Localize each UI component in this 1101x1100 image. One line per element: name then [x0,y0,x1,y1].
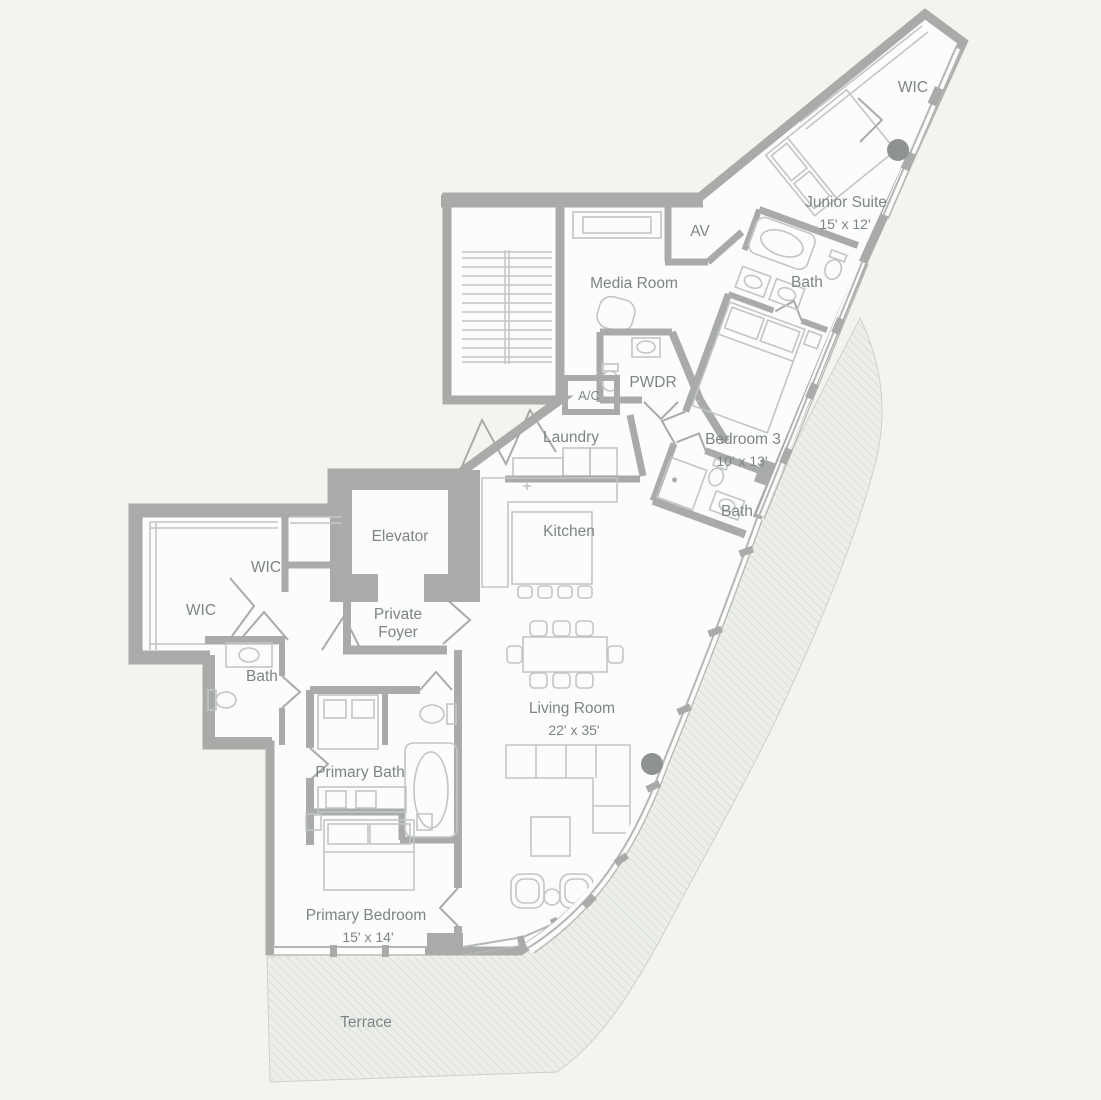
label-media-room: Media Room [590,275,678,292]
label-primary-bedroom: Primary Bedroom [306,907,427,924]
floor-plan-page: WIC Junior Suite 15' x 12' AV Media Room… [0,0,1101,1100]
label-private-foyer-2: Foyer [378,624,418,641]
label-wic-wing: WIC [898,79,928,96]
label-bath-left: Bath [246,668,278,685]
label-living-room: Living Room [529,700,615,717]
label-kitchen: Kitchen [543,523,595,540]
label-junior-suite: Junior Suite [805,194,887,211]
label-primary-bath: Primary Bath [315,764,405,781]
label-wic-upper: WIC [251,559,281,576]
label-laundry: Laundry [543,429,599,446]
label-primary-bedroom-dim: 15' x 14' [342,929,393,945]
label-elevator: Elevator [372,528,429,545]
label-bedroom3: Bedroom 3 [705,431,781,448]
column-top [887,139,909,161]
label-ac: A/C [578,388,600,403]
label-private-foyer-1: Private [374,606,422,623]
label-bedroom3-dim: 10' x 13' [716,453,767,469]
label-terrace: Terrace [340,1014,392,1031]
label-bath-junior: Bath [791,274,823,291]
label-living-room-dim: 22' x 35' [548,722,599,738]
label-junior-suite-dim: 15' x 12' [819,216,870,232]
label-wic-lower: WIC [186,602,216,619]
label-pwdr: PWDR [629,374,676,391]
floor-plan-image: WIC Junior Suite 15' x 12' AV Media Room… [0,0,1101,1100]
label-bath-bedroom3: Bath [721,503,753,520]
label-av: AV [690,223,710,240]
column-living [641,753,663,775]
